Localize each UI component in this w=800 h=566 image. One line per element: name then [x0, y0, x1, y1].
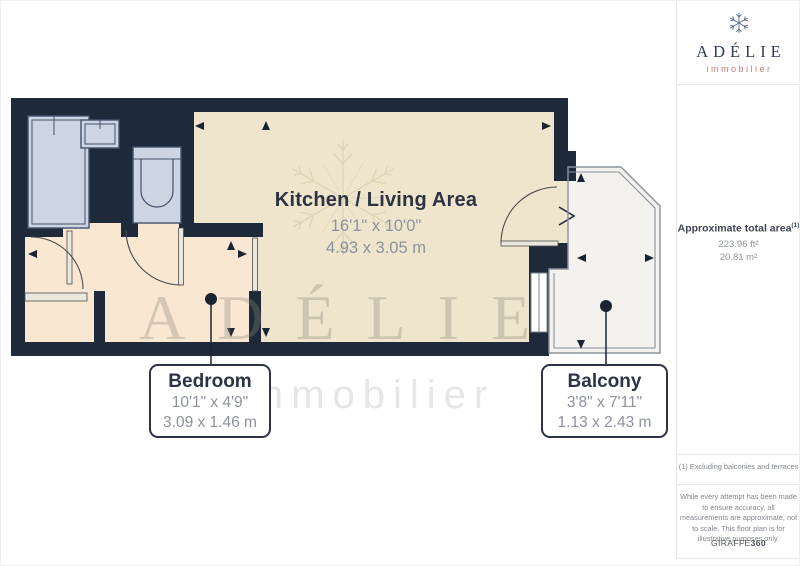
- total-area-metric: 20.81 m²: [676, 251, 800, 264]
- kitchen-living-label: Kitchen / Living Area 16'1" x 10'0" 4.93…: [226, 189, 526, 259]
- kitchen-dim-imperial: 16'1" x 10'0": [226, 215, 526, 237]
- kitchen-living-title: Kitchen / Living Area: [226, 189, 526, 212]
- bathroom-door-leaf: [67, 231, 72, 284]
- bedroom-door-leaf: [25, 293, 87, 301]
- total-area-title-text: Approximate total area: [678, 223, 792, 235]
- toilet-icon: [133, 147, 181, 223]
- logo-snowflake-icon: [727, 11, 751, 35]
- wall-top: [11, 98, 568, 112]
- bedroom-label-box: Bedroom 10'1" x 4'9" 3.09 x 1.46 m: [149, 364, 271, 438]
- wall-closet-stub: [94, 291, 105, 342]
- wall-balcony-pier: [529, 243, 568, 269]
- vendor-brand: GIRAFFE360: [676, 538, 800, 548]
- logo-brand-text: ADÉLIE: [676, 42, 800, 62]
- bathtub-icon: [28, 116, 89, 228]
- sidebar-divider-3: [677, 484, 800, 485]
- wall-balcony-jamb: [554, 151, 576, 181]
- balcony-doorway-floor: [554, 181, 568, 245]
- logo-tagline-text: immobilier: [676, 64, 800, 74]
- balcony-title: Balcony: [543, 371, 666, 393]
- area-footnote: (1) Excluding balconies and terraces: [676, 462, 800, 471]
- bedroom-dim-imperial: 10'1" x 4'9": [151, 393, 269, 413]
- vendor-brand-suffix: 360: [751, 538, 766, 548]
- sidebar-divider-bottom: [677, 558, 800, 559]
- wall-corridor-seg2: [121, 223, 138, 237]
- vendor-brand-name: GIRAFFE: [711, 538, 751, 548]
- disclaimer-text: While every attempt has been made to ens…: [679, 492, 798, 545]
- sidebar-divider-2: [677, 454, 800, 455]
- tagline-watermark: immobilier: [233, 373, 495, 418]
- total-area-imperial: 223.96 ft²: [676, 238, 800, 251]
- floorplan-page: ADÉLIE immobilier Kitchen / Living Area …: [0, 0, 800, 566]
- total-area-block: Approximate total area(1) 223.96 ft² 20.…: [676, 222, 800, 264]
- brand-watermark: ADÉLIE: [139, 281, 562, 355]
- sidebar-divider-1: [677, 84, 800, 85]
- info-sidebar: ADÉLIE immobilier Approximate total area…: [676, 1, 800, 566]
- agency-logo: ADÉLIE immobilier: [676, 11, 800, 74]
- wc-door-leaf: [179, 228, 184, 285]
- balcony-leader-dot: [600, 300, 612, 312]
- bedroom-dim-metric: 3.09 x 1.46 m: [151, 413, 269, 433]
- balcony-dim-imperial: 3'8" x 7'11": [543, 393, 666, 413]
- balcony-dim-metric: 1.13 x 2.43 m: [543, 413, 666, 433]
- total-area-title: Approximate total area(1): [676, 222, 800, 235]
- total-area-note-ref: (1): [791, 222, 799, 229]
- wall-left: [11, 98, 25, 356]
- bedroom-title: Bedroom: [151, 371, 269, 393]
- balcony-label-box: Balcony 3'8" x 7'11" 1.13 x 2.43 m: [541, 364, 668, 438]
- kitchen-dim-metric: 4.93 x 3.05 m: [226, 237, 526, 259]
